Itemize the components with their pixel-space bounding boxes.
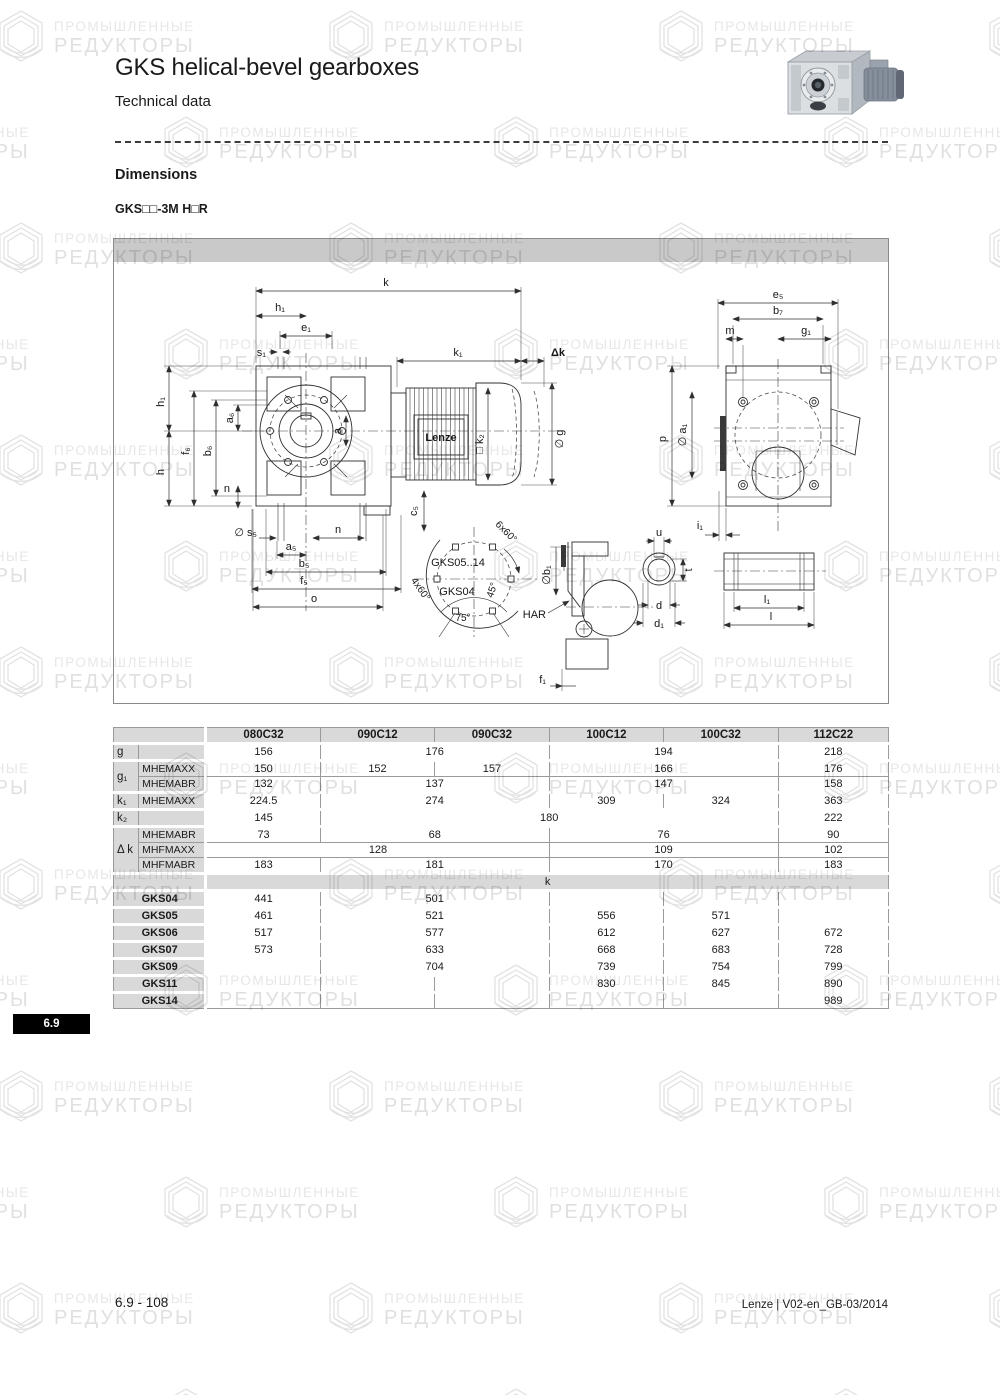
bolt-circle-diagram: 6x60° GKS05..14 GKS04 4x60° 45° 75° xyxy=(408,519,538,637)
section-heading: Dimensions xyxy=(115,167,197,183)
table-cell: 218 xyxy=(778,744,888,761)
watermark: ПРОМЫШЛЕННЫЕРЕДУКТОРЫ xyxy=(490,1174,690,1232)
watermark-text: ПРОМЫШЛЕННЫЕРЕДУКТОРЫ xyxy=(879,124,1000,163)
watermark: ПРОМЫШЛЕННЫЕРЕДУКТОРЫ xyxy=(0,538,30,596)
watermark-text: ПРОМЫШЛЕННЫЕРЕДУКТОРЫ xyxy=(219,124,360,163)
table-row-label: GKS09 xyxy=(114,959,206,976)
watermark-hexagon-logo xyxy=(820,1174,872,1232)
table-cell: 845 xyxy=(664,976,778,993)
table-cell xyxy=(664,891,778,908)
dim-label-n-left: n xyxy=(224,483,230,495)
dim-label-k: k xyxy=(383,277,389,289)
watermark: ПРОМЫШЛЕННЫЕРЕДУКТОРЫ xyxy=(985,1280,1000,1338)
table-row-label: g₁ xyxy=(114,761,139,793)
watermark-text: ПРОМЫШЛЕННЫЕРЕДУКТОРЫ xyxy=(219,1184,360,1223)
watermark-text: ПРОМЫШЛЕННЫЕРЕДУКТОРЫ xyxy=(549,1184,690,1223)
dim-label-s1: s₁ xyxy=(257,347,267,359)
table-cell: 556 xyxy=(549,908,663,925)
table-cell xyxy=(549,993,663,1009)
watermark: ПРОМЫШЛЕННЫЕРЕДУКТОРЫ xyxy=(160,114,360,172)
watermark: ПРОМЫШЛЕННЫЕРЕДУКТОРЫ xyxy=(985,220,1000,278)
table-cell: 612 xyxy=(549,925,663,942)
dim-label-f6: f₆ xyxy=(180,447,192,455)
table-cell: 222 xyxy=(778,810,888,827)
dim-label-k2: □ k₂ xyxy=(474,434,486,453)
watermark: ПРОМЫШЛЕННЫЕРЕДУКТОРЫ xyxy=(985,644,1000,702)
column-header: 090C12 xyxy=(320,728,434,744)
watermark: ПРОМЫШЛЕННЫЕРЕДУКТОРЫ xyxy=(160,1386,360,1395)
table-cell: 627 xyxy=(664,925,778,942)
table-row-label: g xyxy=(114,744,139,761)
watermark: ПРОМЫШЛЕННЫЕРЕДУКТОРЫ xyxy=(325,1280,525,1338)
table-cell xyxy=(664,993,778,1009)
shaft-end-view: u t d d₁ xyxy=(633,527,695,630)
dim-label-b6: b₆ xyxy=(202,446,214,457)
label-har: HAR xyxy=(523,609,546,621)
table-row-label: GKS07 xyxy=(114,942,206,959)
watermark-text: ПРОМЫШЛЕННЫЕРЕДУКТОРЫ xyxy=(879,336,1000,375)
table-row-label: GKS05 xyxy=(114,908,206,925)
table-cell xyxy=(206,993,320,1009)
dim-label-a1: ∅ a₁ xyxy=(677,423,689,446)
table-cell: 132 xyxy=(206,777,320,793)
table-row-label: GKS11 xyxy=(114,976,206,993)
table-cell: 170 xyxy=(549,858,778,874)
table-cell: 157 xyxy=(435,761,549,777)
watermark: ПРОМЫШЛЕННЫЕРЕДУКТОРЫ xyxy=(820,1174,1000,1232)
watermark-text: ПРОМЫШЛЕННЫЕРЕДУКТОРЫ xyxy=(879,760,1000,799)
watermark: ПРОМЫШЛЕННЫЕРЕДУКТОРЫ xyxy=(655,1068,855,1126)
watermark-hexagon-logo xyxy=(325,1068,377,1126)
table-cell: 76 xyxy=(549,827,778,843)
table-cell: 739 xyxy=(549,959,663,976)
table-cell: 109 xyxy=(549,843,778,858)
page-subtitle: Technical data xyxy=(115,93,211,110)
dim-label-g: ∅ g xyxy=(554,430,566,449)
table-row-sublabel: MHFMAXX xyxy=(139,843,206,858)
watermark-hexagon-logo xyxy=(985,856,1000,914)
dim-label-e1: e₁ xyxy=(301,322,311,334)
dim-label-b5: b₅ xyxy=(299,558,310,570)
label-gks05-14: GKS05..14 xyxy=(431,557,485,569)
table-row-sublabel: MHEMAXX xyxy=(139,761,206,777)
watermark: ПРОМЫШЛЕННЫЕРЕДУКТОРЫ xyxy=(0,326,30,384)
table-row-sublabel xyxy=(139,744,206,761)
dim-label-n-bottom: n xyxy=(335,524,341,536)
dim-label-a6: a₆ xyxy=(224,413,236,424)
dim-label-d: d xyxy=(656,600,662,612)
dim-label-p: p xyxy=(657,436,669,442)
dim-label-a5: a₅ xyxy=(286,541,297,553)
watermark-hexagon-logo xyxy=(985,1068,1000,1126)
watermark-hexagon-logo xyxy=(0,432,47,490)
table-cell: 521 xyxy=(320,908,549,925)
watermark-text: ПРОМЫШЛЕННЫЕРЕДУКТОРЫ xyxy=(879,972,1000,1011)
watermark-hexagon-logo xyxy=(490,1174,542,1232)
watermark: ПРОМЫШЛЕННЫЕРЕДУКТОРЫ xyxy=(490,114,690,172)
table-cell xyxy=(206,976,320,993)
watermark-text: ПРОМЫШЛЕННЫЕРЕДУКТОРЫ xyxy=(0,760,30,799)
watermark: ПРОМЫШЛЕННЫЕРЕДУКТОРЫ xyxy=(490,1386,690,1395)
column-header: 100C32 xyxy=(664,728,778,744)
table-cell: 672 xyxy=(778,925,888,942)
watermark-hexagon-logo xyxy=(325,1280,377,1338)
dim-label-b7: b₇ xyxy=(773,305,783,317)
table-row-label: GKS14 xyxy=(114,993,206,1009)
watermark-hexagon-logo xyxy=(985,432,1000,490)
dim-label-f1: f₁ xyxy=(539,674,546,686)
table-cell: 176 xyxy=(778,761,888,777)
page: GKS helical-bevel gearboxes Technical da… xyxy=(0,0,1000,1395)
table-row-label xyxy=(114,874,206,891)
drawing-svg: Lenze k h₁ e₁ xyxy=(114,239,888,703)
table-cell: 441 xyxy=(206,891,320,908)
watermark: ПРОМЫШЛЕННЫЕРЕДУКТОРЫ xyxy=(0,1174,30,1232)
watermark-text: ПРОМЫШЛЕННЫЕРЕДУКТОРЫ xyxy=(879,1184,1000,1223)
watermark: ПРОМЫШЛЕННЫЕРЕДУКТОРЫ xyxy=(985,8,1000,66)
dim-label-u: u xyxy=(656,527,662,539)
table-cell: 704 xyxy=(320,959,549,976)
watermark: ПРОМЫШЛЕННЫЕРЕДУКТОРЫ xyxy=(0,1386,30,1395)
watermark-hexagon-logo xyxy=(0,856,47,914)
table-cell: 158 xyxy=(778,777,888,793)
watermark-hexagon-logo xyxy=(985,644,1000,702)
dim-label-75: 75° xyxy=(455,613,470,624)
watermark-text: ПРОМЫШЛЕННЫЕРЕДУКТОРЫ xyxy=(714,1078,855,1117)
table-cell: 90 xyxy=(778,827,888,843)
table-cell: 176 xyxy=(320,744,549,761)
watermark-text: ПРОМЫШЛЕННЫЕРЕДУКТОРЫ xyxy=(384,1290,525,1329)
watermark-hexagon-logo xyxy=(985,8,1000,66)
table-cell: 102 xyxy=(778,843,888,858)
watermark-hexagon-logo xyxy=(655,1068,707,1126)
column-header: 112C22 xyxy=(778,728,888,744)
dim-label-k1: k₁ xyxy=(453,347,463,359)
table-cell: 156 xyxy=(206,744,320,761)
table-row-label: k₂ xyxy=(114,810,139,827)
table-row-sublabel: MHEMABR xyxy=(139,827,206,843)
table-cell: 830 xyxy=(549,976,663,993)
watermark: ПРОМЫШЛЕННЫЕРЕДУКТОРЫ xyxy=(0,114,30,172)
watermark-hexagon-logo xyxy=(985,220,1000,278)
column-header: 090C32 xyxy=(435,728,549,744)
watermark-text: ПРОМЫШЛЕННЫЕРЕДУКТОРЫ xyxy=(0,336,30,375)
sleeve-view: l₁ l xyxy=(714,553,826,629)
dim-label-b1: ∅b₁ xyxy=(541,565,553,585)
section-tab: 6.9 xyxy=(13,1014,90,1034)
watermark-hexagon-logo xyxy=(490,114,542,172)
watermark-text: ПРОМЫШЛЕННЫЕРЕДУКТОРЫ xyxy=(54,1078,195,1117)
table-corner xyxy=(114,728,206,744)
dim-label-o: o xyxy=(311,593,317,605)
watermark-hexagon-logo xyxy=(160,114,212,172)
dim-label-45: 45° xyxy=(485,581,500,599)
gearbox-product-image xyxy=(778,40,908,128)
table-cell: 68 xyxy=(320,827,549,843)
table-row-sublabel xyxy=(139,810,206,827)
watermark-text: ПРОМЫШЛЕННЫЕРЕДУКТОРЫ xyxy=(384,18,525,57)
table-cell: 183 xyxy=(778,858,888,874)
table-cell: 274 xyxy=(320,793,549,810)
watermark-text: ПРОМЫШЛЕННЫЕРЕДУКТОРЫ xyxy=(0,124,30,163)
watermark: ПРОМЫШЛЕННЫЕРЕДУКТОРЫ xyxy=(985,856,1000,914)
watermark-text: ПРОМЫШЛЕННЫЕРЕДУКТОРЫ xyxy=(0,548,30,587)
table-cell: 152 xyxy=(320,761,434,777)
table-cell: 890 xyxy=(778,976,888,993)
dim-label-g1: g₁ xyxy=(801,325,811,337)
table-cell xyxy=(778,908,888,925)
dim-label-l1: l₁ xyxy=(764,594,770,606)
dim-label-m: m xyxy=(725,325,734,337)
table-row-label: k₁ xyxy=(114,793,139,810)
table-cell xyxy=(435,993,549,1009)
table-cell: 324 xyxy=(664,793,778,810)
watermark-hexagon-logo xyxy=(0,8,47,66)
dimensions-table: 080C32090C12090C32100C12100C32112C22g156… xyxy=(113,727,889,1009)
label-gks04: GKS04 xyxy=(439,586,474,598)
table-row-sublabel: MHEMABR xyxy=(139,777,206,793)
watermark-text: ПРОМЫШЛЕННЫЕРЕДУКТОРЫ xyxy=(384,1078,525,1117)
watermark: ПРОМЫШЛЕННЫЕРЕДУКТОРЫ xyxy=(325,1068,525,1126)
watermark-hexagon-logo xyxy=(655,1280,707,1338)
watermark: ПРОМЫШЛЕННЫЕРЕДУКТОРЫ xyxy=(985,1068,1000,1126)
dim-label-e5: e₅ xyxy=(773,289,784,301)
watermark: ПРОМЫШЛЕННЫЕРЕДУКТОРЫ xyxy=(0,1068,195,1126)
table-cell xyxy=(549,891,663,908)
model-designation: GKS□□-3M H□R xyxy=(115,202,208,216)
watermark-hexagon-logo xyxy=(160,1386,212,1395)
column-header: 100C12 xyxy=(549,728,663,744)
table-cell: 363 xyxy=(778,793,888,810)
table-cell: 183 xyxy=(206,858,320,874)
dim-label-l: l xyxy=(770,611,772,623)
watermark-text: ПРОМЫШЛЕННЫЕРЕДУКТОРЫ xyxy=(54,18,195,57)
table-row-label: Δ k xyxy=(114,827,139,874)
table-row-label: GKS04 xyxy=(114,891,206,908)
table-cell: 754 xyxy=(664,959,778,976)
dim-label-c5: c₅ xyxy=(408,506,420,516)
dim-label-i1: i₁ xyxy=(697,520,703,532)
dim-label-h: h xyxy=(155,469,167,475)
table-cell: 668 xyxy=(549,942,663,959)
table-cell: 573 xyxy=(206,942,320,959)
side-view-dimensions: e₅ b₇ m g₁ p ∅ a₁ i₁ xyxy=(657,289,838,541)
table-cell xyxy=(320,993,434,1009)
table-cell: 517 xyxy=(206,925,320,942)
table-cell: 166 xyxy=(549,761,778,777)
dim-label-s5: ∅ s₅ xyxy=(234,527,257,539)
table-cell: 799 xyxy=(778,959,888,976)
dashed-divider xyxy=(115,141,888,143)
table-cell xyxy=(778,891,888,908)
table-cell: 73 xyxy=(206,827,320,843)
watermark: ПРОМЫШЛЕННЫЕРЕДУКТОРЫ xyxy=(160,1174,360,1232)
table-cell xyxy=(206,959,320,976)
watermark-text: ПРОМЫШЛЕННЫЕРЕДУКТОРЫ xyxy=(0,972,30,1011)
watermark-text: ПРОМЫШЛЕННЫЕРЕДУКТОРЫ xyxy=(549,124,690,163)
dim-label-dk: Δk xyxy=(551,347,566,359)
footer-doc-reference: Lenze | V02-en_GB-03/2014 xyxy=(742,1299,888,1311)
table-cell: 309 xyxy=(549,793,663,810)
table-cell: 181 xyxy=(320,858,549,874)
front-view-dimensions: k h₁ e₁ s₁ k₁ Δk xyxy=(155,277,566,611)
dimension-drawing: Lenze k h₁ e₁ xyxy=(113,238,889,704)
watermark-hexagon-logo xyxy=(820,1386,872,1395)
table-cell: 224.5 xyxy=(206,793,320,810)
dim-label-6x60: 6x60° xyxy=(493,519,519,545)
table-section-header: k xyxy=(206,874,889,891)
watermark-hexagon-logo xyxy=(655,8,707,66)
table-cell: 683 xyxy=(664,942,778,959)
table-cell: 989 xyxy=(778,993,888,1009)
column-header: 080C32 xyxy=(206,728,320,744)
watermark-text: ПРОМЫШЛЕННЫЕРЕДУКТОРЫ xyxy=(879,548,1000,587)
watermark-hexagon-logo xyxy=(160,1174,212,1232)
dim-label-h1-left: h₁ xyxy=(155,397,167,407)
table-cell: 194 xyxy=(549,744,778,761)
watermark: ПРОМЫШЛЕННЫЕРЕДУКТОРЫ xyxy=(0,750,30,808)
page-title: GKS helical-bevel gearboxes xyxy=(115,54,419,82)
table-cell: 728 xyxy=(778,942,888,959)
table-cell: 461 xyxy=(206,908,320,925)
dim-label-t: t xyxy=(683,568,695,571)
table-row-label: GKS06 xyxy=(114,925,206,942)
table-cell: 128 xyxy=(206,843,549,858)
table-cell: 571 xyxy=(664,908,778,925)
table-cell: 150 xyxy=(206,761,320,777)
product-photo-svg xyxy=(778,40,908,125)
watermark: ПРОМЫШЛЕННЫЕРЕДУКТОРЫ xyxy=(0,962,30,1020)
lenze-logo: Lenze xyxy=(425,432,456,444)
table-row-sublabel: MHFMABR xyxy=(139,858,206,874)
table-cell xyxy=(320,976,434,993)
table-cell: 180 xyxy=(320,810,778,827)
watermark: ПРОМЫШЛЕННЫЕРЕДУКТОРЫ xyxy=(820,1386,1000,1395)
watermark: ПРОМЫШЛЕННЫЕРЕДУКТОРЫ xyxy=(985,432,1000,490)
watermark-hexagon-logo xyxy=(0,220,47,278)
table-cell xyxy=(435,976,549,993)
table-cell: 577 xyxy=(320,925,549,942)
dim-label-h1-top: h₁ xyxy=(275,302,285,314)
watermark-hexagon-logo xyxy=(0,644,47,702)
watermark-hexagon-logo xyxy=(0,1280,47,1338)
table-row-sublabel: MHEMAXX xyxy=(139,793,206,810)
dim-label-f5: f₅ xyxy=(300,575,308,587)
table-cell: 137 xyxy=(320,777,549,793)
watermark-text: ПРОМЫШЛЕННЫЕРЕДУКТОРЫ xyxy=(0,1184,30,1223)
watermark-hexagon-logo xyxy=(490,1386,542,1395)
table-cell: 145 xyxy=(206,810,320,827)
watermark-hexagon-logo xyxy=(0,1068,47,1126)
dim-label-a: a xyxy=(332,427,344,434)
table-cell: 633 xyxy=(320,942,549,959)
watermark-hexagon-logo xyxy=(985,1280,1000,1338)
footer-page-number: 6.9 - 108 xyxy=(115,1295,168,1310)
output-section-view: ∅b₁ HAR f₁ xyxy=(523,542,654,691)
table-cell: 501 xyxy=(320,891,549,908)
table-cell: 147 xyxy=(549,777,778,793)
dim-label-d1: d₁ xyxy=(654,618,664,630)
